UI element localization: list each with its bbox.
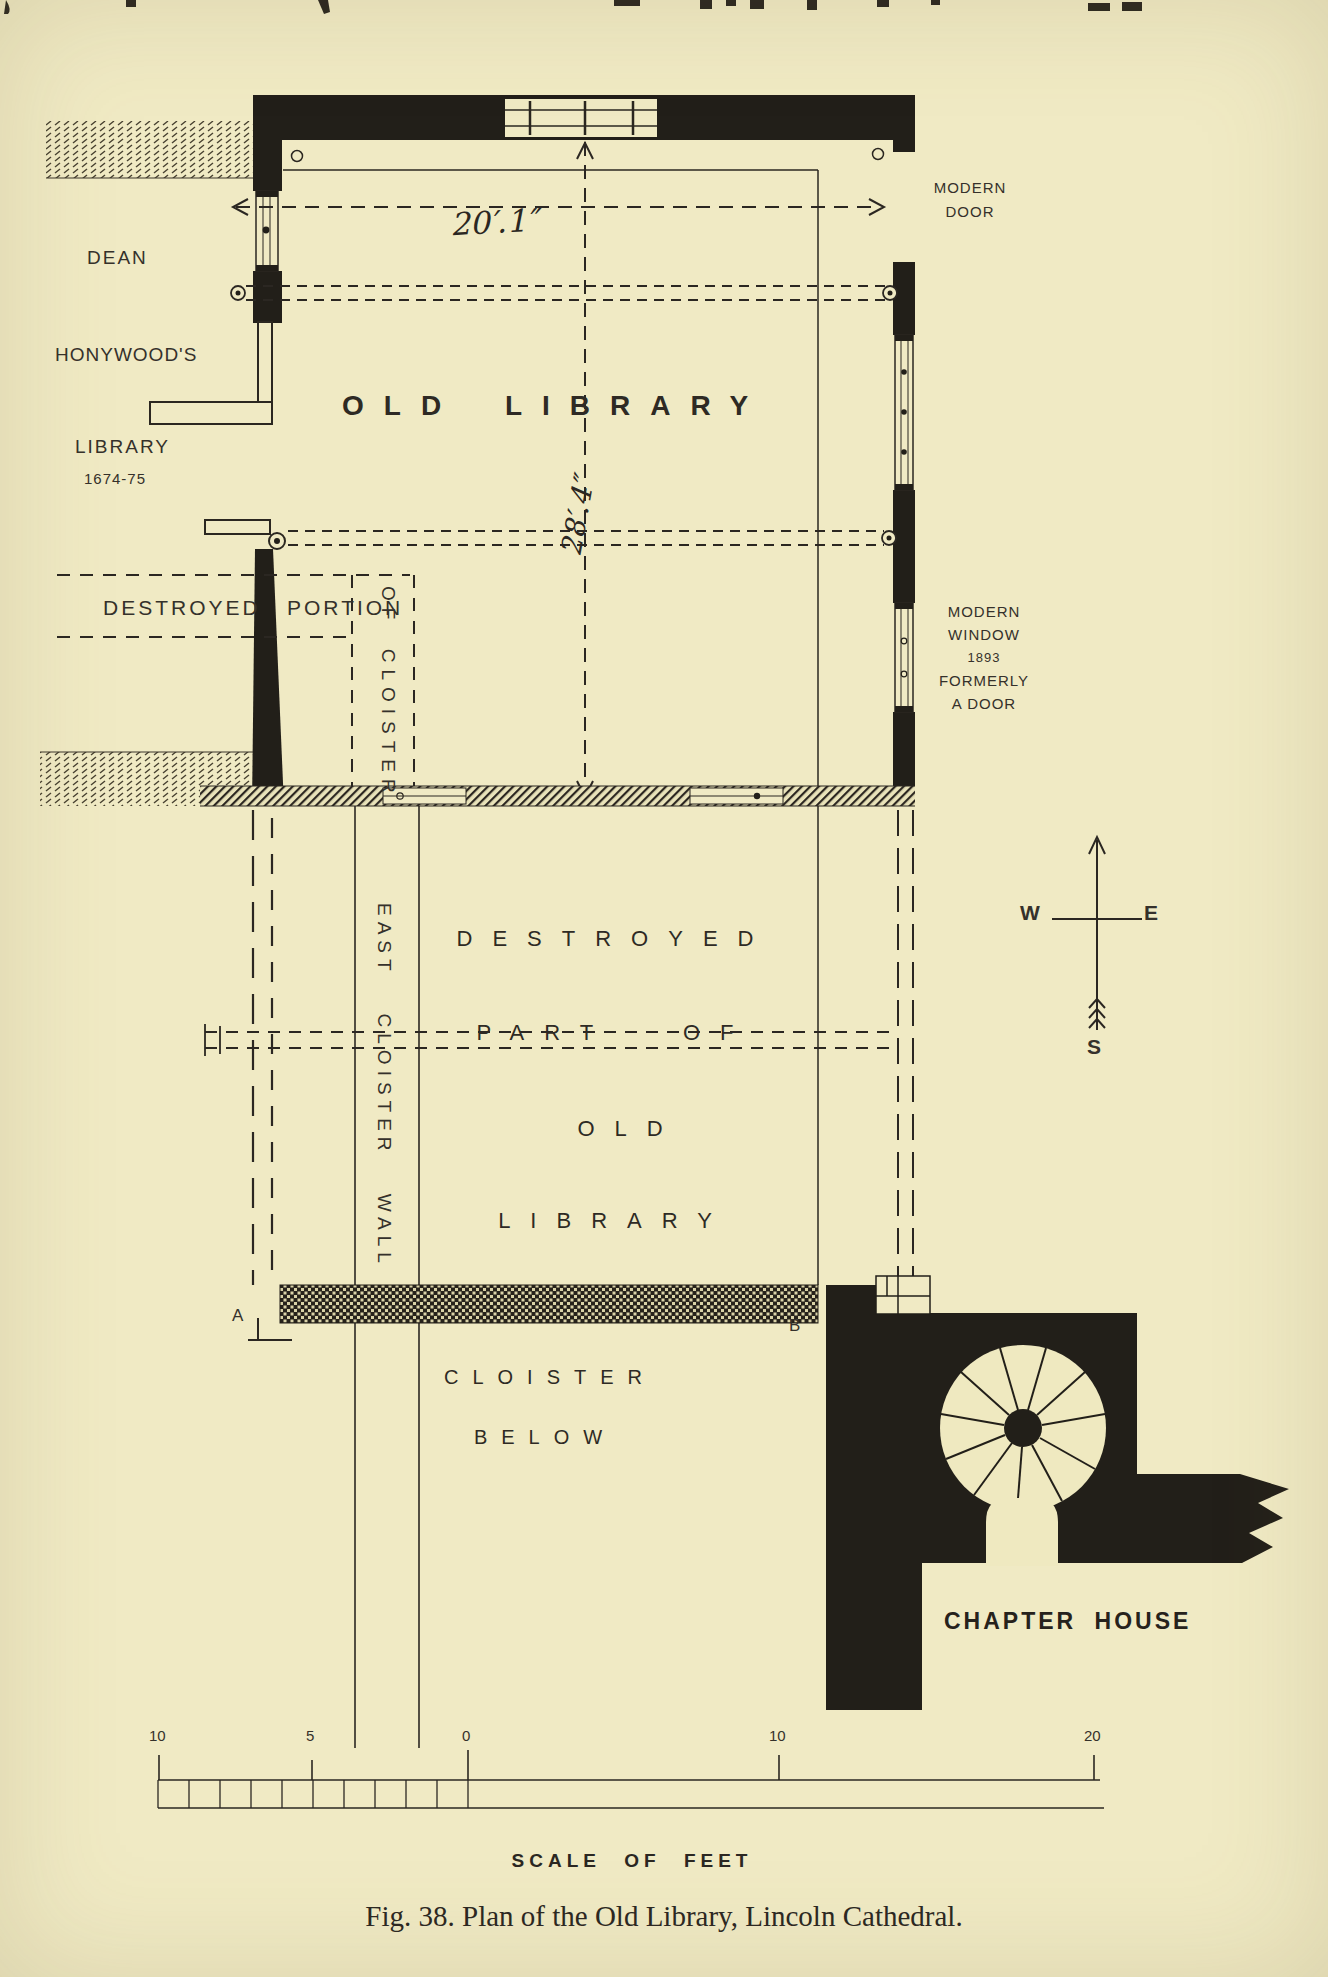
scale-tick-label-20: 20 xyxy=(1084,1727,1101,1744)
honywood-wall-hatched xyxy=(40,121,253,806)
compass-south: S xyxy=(1087,1035,1101,1059)
page-edge-print-remnants xyxy=(4,0,1142,14)
label-cloister-below-2: BELOW xyxy=(330,1426,760,1449)
scale-tick-label-0: 0 xyxy=(462,1727,470,1744)
west-window xyxy=(256,191,278,271)
label-library: LIBRARY xyxy=(75,436,170,458)
marker-b: B xyxy=(789,1316,800,1336)
label-cloister-below-1: CLOISTER xyxy=(330,1366,770,1389)
label-chapter-house: CHAPTER HOUSE xyxy=(944,1608,1191,1635)
label-destroyed-part-2: PART OF xyxy=(365,1020,865,1046)
modern-window-line5: A DOOR xyxy=(928,692,1040,715)
east-window-upper xyxy=(895,335,913,490)
label-of-cloister: OF CLOISTER xyxy=(377,586,399,800)
scale-bar xyxy=(158,1750,1104,1808)
dimension-width xyxy=(233,199,884,215)
chapter-house-doorway xyxy=(986,1498,1058,1566)
label-destroyed-part-4: LIBRARY xyxy=(365,1208,865,1234)
label-modern-door: MODERN DOOR xyxy=(918,176,1022,224)
label-destroyed-part-1: DESTROYED xyxy=(365,926,865,952)
scale-tick-label-10r: 10 xyxy=(769,1727,786,1744)
marker-a: A xyxy=(232,1306,243,1326)
compass xyxy=(1052,837,1142,1030)
label-old-library: OLD LIBRARY xyxy=(342,390,768,422)
chapter-house-structure xyxy=(826,1276,1289,1710)
corner-mark-right xyxy=(873,149,884,160)
dimension-width-label: 20′.1″ xyxy=(449,202,538,243)
compass-east: E xyxy=(1144,901,1158,925)
modern-door-line1: MODERN xyxy=(918,176,1022,200)
wall-a-b xyxy=(248,1285,818,1340)
floor-plan-drawing xyxy=(0,0,1328,1977)
scale-tick-label-10l: 10 xyxy=(149,1727,166,1744)
south-wall xyxy=(200,786,915,806)
label-years: 1674-75 xyxy=(84,470,146,487)
modern-window-line1: MODERN xyxy=(928,600,1040,623)
scale-tick-label-5: 5 xyxy=(306,1727,314,1744)
label-dean: DEAN xyxy=(87,247,148,269)
floor-plan-page: DEAN HONYWOOD'S LIBRARY 1674-75 MODERN D… xyxy=(0,0,1328,1977)
modern-door-line2: DOOR xyxy=(918,200,1022,224)
gallery-line-upper xyxy=(231,286,897,300)
compass-west: W xyxy=(1020,901,1040,925)
label-honywoods: HONYWOOD'S xyxy=(55,344,197,366)
label-destroyed-part-3: OLD xyxy=(380,1116,880,1142)
gallery-line-lower xyxy=(288,531,896,545)
pivot-dot xyxy=(274,538,280,544)
spiral-stair xyxy=(940,1345,1106,1511)
scale-of-feet-label: SCALE OF FEET xyxy=(332,1850,932,1872)
dimension-depth xyxy=(577,142,593,798)
corner-mark-left xyxy=(292,151,303,162)
label-modern-window: MODERN WINDOW 1893 FORMERLY A DOOR xyxy=(928,600,1040,715)
label-destroyed: DESTROYED xyxy=(103,596,261,620)
modern-window-line2: WINDOW xyxy=(928,623,1040,646)
modern-window-1893 xyxy=(895,603,913,712)
modern-window-line4: FORMERLY xyxy=(928,669,1040,692)
vestibule-window xyxy=(876,1276,930,1314)
modern-window-line3: 1893 xyxy=(928,646,1040,669)
figure-caption: Fig. 38. Plan of the Old Library, Lincol… xyxy=(164,1900,1164,1933)
